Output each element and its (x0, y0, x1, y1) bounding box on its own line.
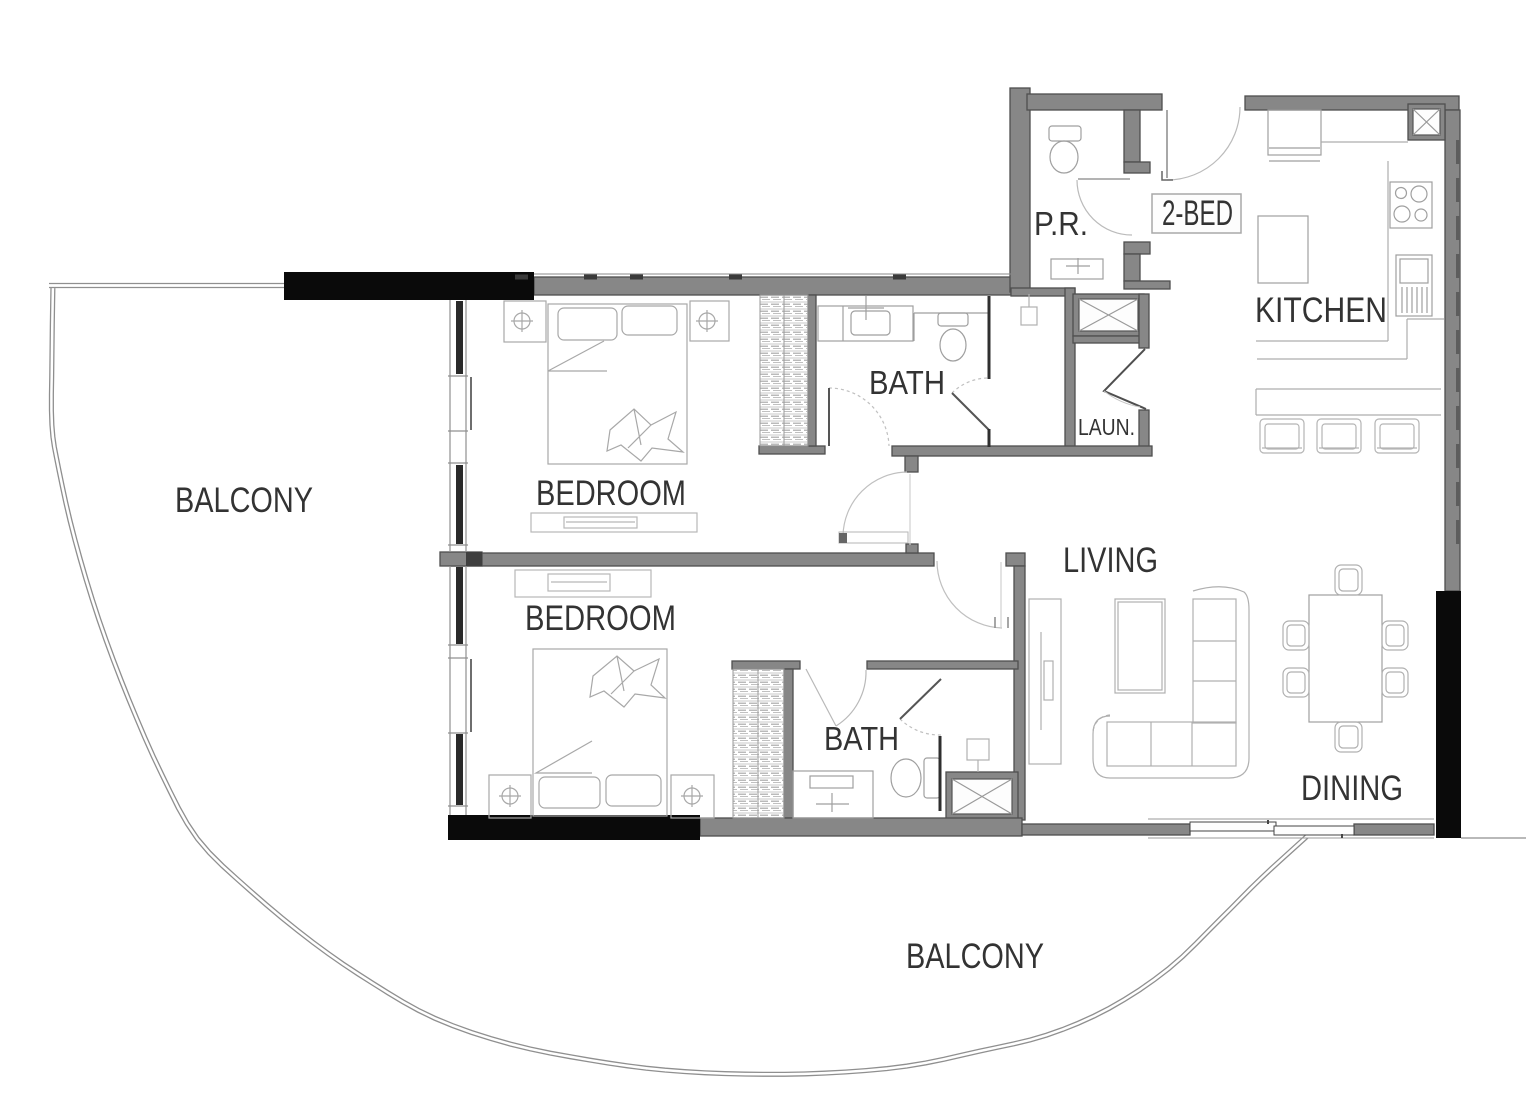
svg-text:BALCONY: BALCONY (906, 937, 1044, 976)
svg-text:LAUN.: LAUN. (1078, 414, 1135, 440)
svg-text:BALCONY: BALCONY (175, 481, 313, 520)
svg-text:BEDROOM: BEDROOM (536, 474, 686, 513)
svg-text:DINING: DINING (1301, 769, 1403, 808)
svg-text:BATH: BATH (824, 721, 899, 758)
svg-text:BATH: BATH (869, 365, 945, 402)
svg-text:2-BED: 2-BED (1162, 194, 1233, 233)
svg-text:P.R.: P.R. (1034, 205, 1088, 242)
svg-text:BEDROOM: BEDROOM (525, 599, 676, 638)
svg-text:LIVING: LIVING (1063, 541, 1158, 580)
svg-text:KITCHEN: KITCHEN (1255, 291, 1387, 330)
